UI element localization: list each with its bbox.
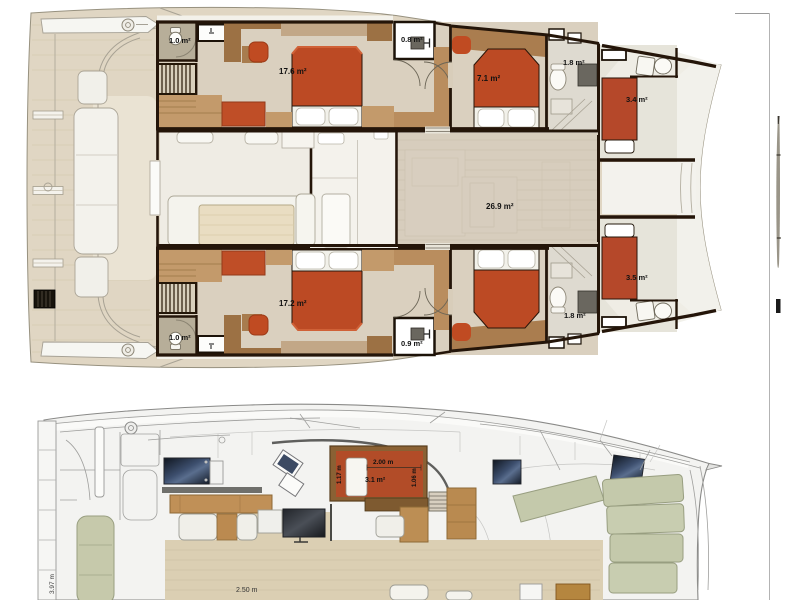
svg-text:26.9 m²: 26.9 m² <box>486 202 514 211</box>
svg-text:0.9 m²: 0.9 m² <box>401 339 423 348</box>
svg-text:3.4 m²: 3.4 m² <box>626 95 648 104</box>
svg-text:1.06 m: 1.06 m <box>412 468 418 487</box>
svg-text:2.50 m: 2.50 m <box>236 587 258 594</box>
svg-text:1.17 m: 1.17 m <box>337 465 343 484</box>
svg-text:1.0 m²: 1.0 m² <box>169 36 191 45</box>
svg-text:7.1 m²: 7.1 m² <box>477 74 500 83</box>
svg-text:3.5 m²: 3.5 m² <box>626 273 648 282</box>
svg-text:1.8 m²: 1.8 m² <box>563 58 585 67</box>
svg-text:3.1 m²: 3.1 m² <box>365 477 386 484</box>
svg-text:1.8 m²: 1.8 m² <box>564 311 586 320</box>
svg-text:17.6 m²: 17.6 m² <box>279 67 307 76</box>
svg-text:2.00 m: 2.00 m <box>373 459 393 466</box>
svg-text:1.0 m²: 1.0 m² <box>169 333 191 342</box>
svg-text:17.2 m²: 17.2 m² <box>279 299 307 308</box>
svg-text:3.97 m: 3.97 m <box>49 574 56 594</box>
svg-text:0.8 m²: 0.8 m² <box>401 35 423 44</box>
